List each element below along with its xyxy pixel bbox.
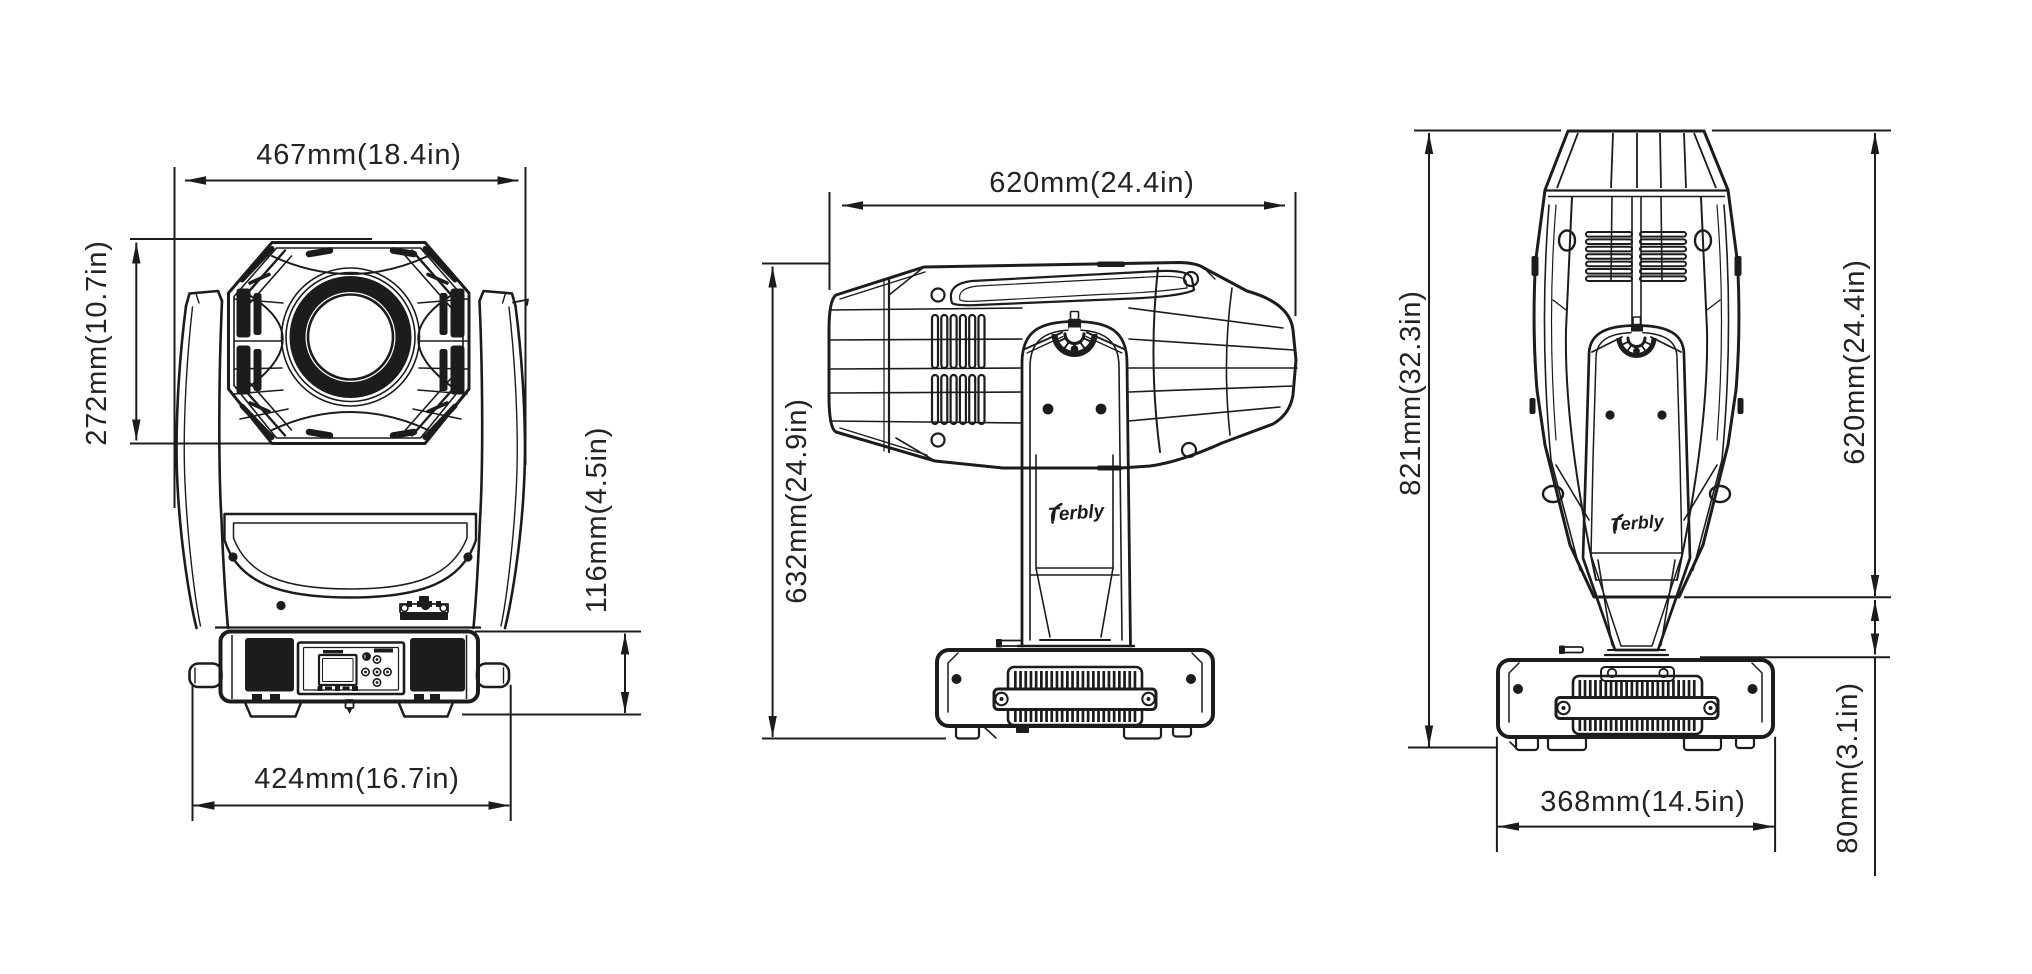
svg-text:821mm(32.3in): 821mm(32.3in) [1395,290,1427,495]
svg-text:116mm(4.5in): 116mm(4.5in) [581,427,613,613]
svg-text:368mm(14.5in): 368mm(14.5in) [1540,786,1745,818]
svg-text:272mm(10.7in): 272mm(10.7in) [81,240,113,445]
svg-text:Terbly: Terbly [1047,501,1106,526]
svg-text:620mm(24.4in): 620mm(24.4in) [1839,259,1871,464]
svg-text:620mm(24.4in): 620mm(24.4in) [989,167,1194,199]
svg-text:632mm(24.9in): 632mm(24.9in) [781,398,813,603]
svg-text:467mm(18.4in): 467mm(18.4in) [256,139,461,171]
svg-text:424mm(16.7in): 424mm(16.7in) [254,763,459,795]
svg-text:80mm(3.1in): 80mm(3.1in) [1832,682,1864,854]
svg-text:Terbly: Terbly [1610,511,1666,535]
